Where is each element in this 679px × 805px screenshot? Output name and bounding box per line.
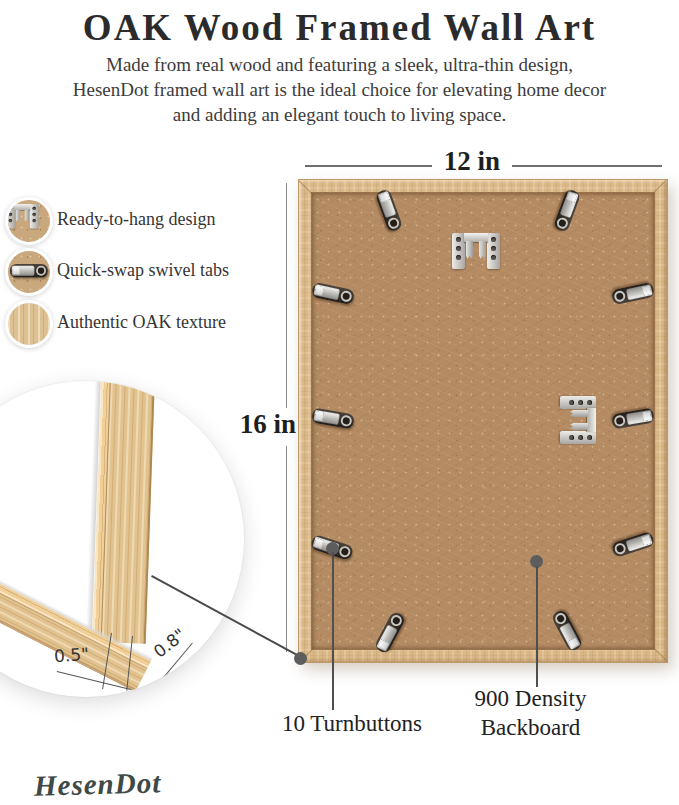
dimension-height-label: 16 in: [224, 409, 296, 440]
backboard-callout-line1: 900 Density: [448, 684, 613, 713]
frame-depth-label: 0.8": [150, 624, 190, 661]
dimension-height-line: [286, 446, 287, 652]
swivel-tab-icon: [5, 248, 53, 296]
sawtooth-hanger-icon: [5, 197, 53, 245]
backboard-callout-label: 900 Density Backboard: [448, 684, 613, 742]
detail-frame-side: [86, 381, 159, 644]
subtitle-line: Made from real wood and featuring a slee…: [0, 54, 679, 76]
dimension-width-line-left: [305, 165, 432, 167]
oak-texture-icon: [5, 300, 53, 348]
corner-detail-circle: 0.5" 0.8": [0, 381, 244, 697]
sawtooth-hanger-landscape: [560, 396, 596, 444]
dimension-height-line: [286, 183, 287, 408]
backboard-callout-line: [536, 566, 538, 687]
sawtooth-hanger-portrait: [452, 233, 500, 269]
turnbutton-callout-line: [332, 552, 334, 710]
dimension-width-line-right: [512, 165, 662, 167]
turnbuttons-callout-label: 10 Turnbuttons: [262, 709, 442, 738]
corner-callout-dot: [294, 652, 307, 665]
feature-label: Quick-swap swivel tabs: [57, 260, 229, 281]
detail-frame-side-face: [101, 381, 155, 644]
dimension-width-label: 12 in: [432, 146, 512, 177]
feature-label: Ready-to-hang design: [57, 209, 215, 230]
subtitle-line: and adding an elegant touch to living sp…: [0, 104, 679, 126]
feature-label: Authentic OAK texture: [57, 312, 226, 333]
face-width-label: 0.5": [53, 644, 89, 666]
product-infographic: OAK Wood Framed Wall Art Made from real …: [0, 0, 679, 805]
swivel-tab-glyph: [10, 264, 48, 278]
page-title: OAK Wood Framed Wall Art: [0, 6, 679, 49]
subtitle-line: HesenDot framed wall art is the ideal ch…: [0, 79, 679, 101]
sawtooth-hanger-glyph: [6, 204, 39, 228]
brand-logo: HesenDot: [34, 766, 162, 802]
backboard-callout-line2: Backboard: [448, 713, 613, 742]
